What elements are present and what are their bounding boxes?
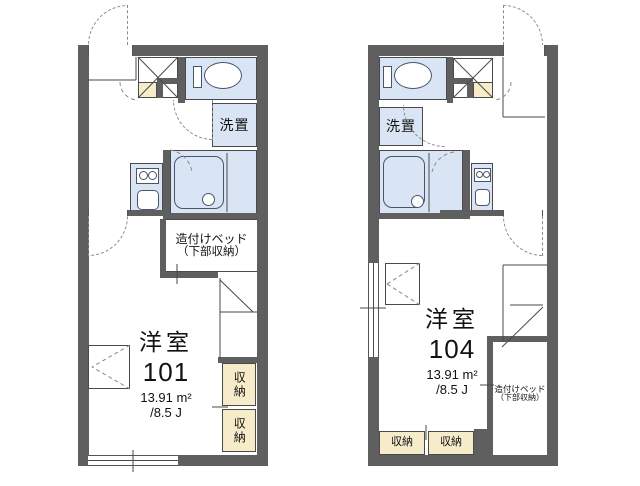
storage-label-2: 収納 [440, 437, 462, 449]
refrigerator-space-icon [385, 263, 420, 305]
wall-bath-left [163, 150, 170, 218]
bed-label-line1: 造付けベッド [175, 233, 247, 246]
bed-label-line2: （下部収納） [175, 246, 247, 258]
wall-right [257, 45, 268, 466]
toilet-icon [204, 62, 242, 89]
bath-drain-icon [202, 193, 215, 206]
floor-plan-canvas: 洗置 造付けベッド （下部収納） [0, 0, 640, 486]
wall-toilet-partition [447, 57, 453, 103]
window-bottom [88, 455, 178, 466]
room-door-arc-icon [503, 216, 543, 256]
entrance-door-opening [503, 45, 545, 56]
kitchen-unit [130, 163, 163, 213]
room-number: 101 [106, 357, 226, 388]
storage-box-1: 収納 [379, 431, 425, 455]
toilet-icon [394, 62, 432, 89]
wall-storage-right [474, 429, 487, 455]
entrance-door-arc-icon [88, 5, 128, 45]
kitchen-unit [471, 163, 493, 213]
room-area-tatami: /8.5 J [106, 405, 226, 420]
wall-entrance-bar [157, 78, 178, 84]
room-label-block: 洋室 101 13.91 m² /8.5 J [106, 323, 226, 420]
room-area-sqm: 13.91 m² [392, 367, 512, 382]
storage-box-2: 収納 [222, 409, 256, 452]
wall-left [368, 45, 379, 466]
room-type-label: 洋室 [392, 300, 512, 334]
wall-entrance-bar [453, 78, 473, 84]
wall-partition [440, 210, 503, 216]
built-in-bed: 造付けベッド （下部収納） [166, 219, 257, 272]
bath-drain-icon [411, 195, 424, 208]
room-door-arc-icon [88, 216, 128, 256]
storage-label-2: 収納 [233, 417, 246, 445]
floorplan-unit-101: 洗置 造付けベッド （下部収納） [78, 45, 268, 466]
room-area-sqm: 13.91 m² [106, 390, 226, 405]
hall-door-arc-icon [173, 100, 213, 140]
sink-icon [475, 189, 490, 206]
stove-icon [474, 168, 491, 182]
room-type-label: 洋室 [106, 323, 226, 357]
sink-icon [137, 190, 159, 210]
wall-bed-bottom [160, 272, 218, 278]
toilet-tank-icon [383, 66, 392, 88]
entrance-step [138, 82, 157, 98]
storage-box-1: 収納 [222, 363, 256, 406]
entrance-door-arc-icon [503, 5, 543, 45]
laundry-label: 洗置 [220, 118, 250, 133]
stove-icon [136, 168, 159, 184]
room-number: 104 [392, 334, 512, 365]
bathtub-icon [174, 156, 224, 209]
storage-label-1: 収納 [391, 437, 413, 449]
toilet-tank-icon [193, 66, 202, 88]
room-area-tatami: /8.5 J [392, 382, 512, 397]
toilet-room [185, 57, 257, 100]
entrance-step [473, 82, 493, 98]
wall-toilet-partition [178, 57, 185, 103]
floorplan-unit-104: 洗置 造付けベッド （下 [368, 45, 558, 466]
room-label-block: 洋室 104 13.91 m² /8.5 J [392, 300, 512, 397]
storage-box-2: 収納 [428, 431, 474, 455]
wall-right [547, 45, 558, 466]
toilet-room [379, 57, 447, 100]
storage-label-1: 収納 [233, 371, 246, 399]
window-left [368, 263, 379, 357]
wall-bath-right [463, 150, 470, 218]
entrance-door-opening [88, 45, 133, 56]
laundry-room: 洗置 [212, 103, 257, 147]
wall-bottom [368, 455, 558, 466]
